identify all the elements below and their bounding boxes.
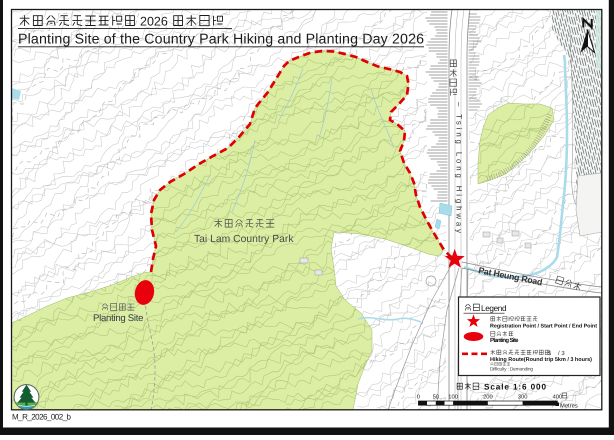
svg-text:Difficulty : Demanding: Difficulty : Demanding	[490, 367, 533, 373]
svg-text:Tai Lam Country Park: Tai Lam Country Park	[194, 234, 294, 245]
svg-text:Hiking Route(Round trip 5km /: Hiking Route(Round trip 5km / 3 hours)	[490, 357, 592, 363]
svg-text:2026: 2026	[140, 15, 168, 29]
svg-text:0: 0	[417, 394, 420, 401]
svg-text:50: 50	[433, 394, 439, 401]
svg-text:Registration Point / Start Poi: Registration Point / Start Point / End P…	[490, 324, 597, 330]
svg-text:100: 100	[448, 394, 458, 401]
svg-text:– Tsing Long Highway: – Tsing Long Highway	[455, 102, 464, 233]
svg-text:400: 400	[553, 394, 563, 401]
svg-text:Planting Site of the Country P: Planting Site of the Country Park Hiking…	[18, 32, 424, 48]
svg-text:Metres: Metres	[560, 404, 578, 410]
svg-text:/ 3: / 3	[558, 350, 565, 357]
svg-text:M_R_2026_002_b: M_R_2026_002_b	[12, 413, 72, 422]
svg-text:Planting Site: Planting Site	[490, 337, 519, 344]
svg-text:Legend: Legend	[481, 304, 507, 313]
svg-text:200: 200	[483, 394, 493, 401]
svg-text:300: 300	[518, 394, 528, 401]
svg-text:Planting Site: Planting Site	[93, 313, 144, 324]
svg-text:Scale 1:6 000: Scale 1:6 000	[484, 383, 546, 392]
